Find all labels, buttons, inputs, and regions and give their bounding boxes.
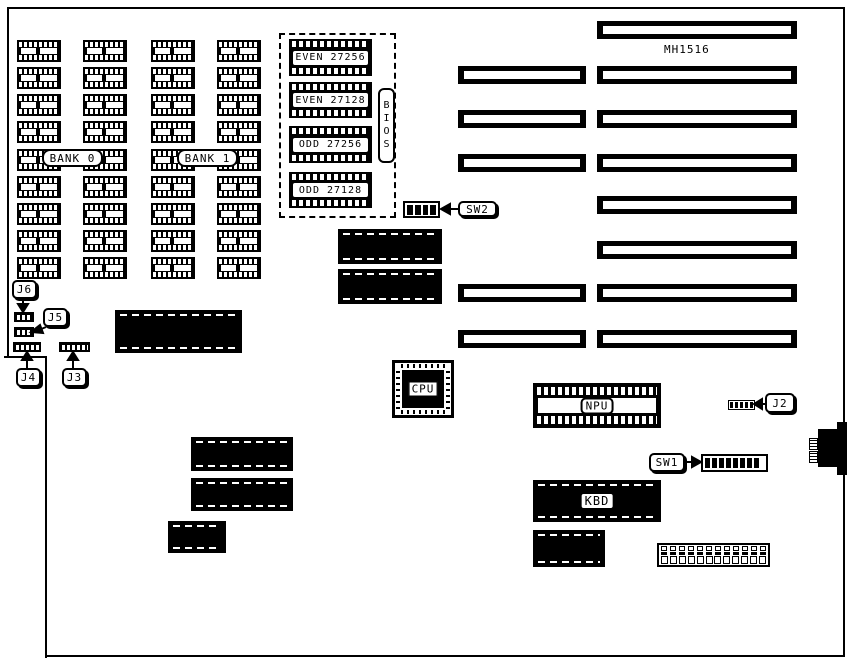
- ram-chip: [151, 176, 195, 198]
- ram-chip: [217, 257, 261, 279]
- ram-chip: [217, 203, 261, 225]
- ram-chip: [83, 94, 127, 116]
- ic-chip: [533, 530, 605, 567]
- expansion-slot: [597, 330, 797, 348]
- ram-chip: [17, 40, 61, 62]
- eprom-chip: ODD 27128: [289, 172, 372, 208]
- ram-chip: [83, 121, 127, 143]
- eprom-chip: ODD 27256: [289, 126, 372, 163]
- j3-label: J3: [62, 368, 87, 387]
- expansion-slot: [458, 154, 586, 172]
- expansion-slot: [597, 154, 797, 172]
- eprom-chip: EVEN 27128: [289, 82, 372, 118]
- expansion-slot: [597, 110, 797, 128]
- ic-chip: [191, 478, 293, 511]
- ram-chip: [83, 67, 127, 89]
- ram-chip: [17, 176, 61, 198]
- j6-label: J6: [12, 280, 37, 299]
- ram-chip: [17, 203, 61, 225]
- ram-chip: [217, 67, 261, 89]
- ram-chip: [151, 94, 195, 116]
- j5-connector: [14, 327, 34, 337]
- power-connector-tabs: [661, 546, 766, 551]
- eprom-chip: EVEN 27256: [289, 39, 372, 76]
- ram-chip: [217, 40, 261, 62]
- expansion-slot: [458, 284, 586, 302]
- keyboard-din-pin-block-2: [809, 451, 818, 463]
- ram-chip: [151, 203, 195, 225]
- ram-chip: [83, 176, 127, 198]
- npu-pins-top: [537, 387, 657, 395]
- ram-chip: [217, 94, 261, 116]
- keyboard-din-connector-flange: [837, 422, 847, 475]
- ram-chip: [17, 94, 61, 116]
- bank1-label: BANK 1: [177, 149, 238, 167]
- expansion-slot: [458, 330, 586, 348]
- ram-chip: [17, 67, 61, 89]
- eprom-chip-label: ODD 27128: [291, 181, 370, 199]
- cpu-pins-top: [401, 364, 445, 368]
- power-connector: [657, 543, 770, 567]
- ram-chip: [83, 230, 127, 252]
- ram-chip: [217, 176, 261, 198]
- ram-chip: [151, 67, 195, 89]
- j2-label: J2: [765, 393, 795, 413]
- npu-socket: NPU: [533, 383, 661, 428]
- bios-label: BIOS: [378, 88, 395, 163]
- expansion-slot: [458, 66, 586, 84]
- expansion-slot: [597, 21, 797, 39]
- expansion-slot: [458, 110, 586, 128]
- j3-connector: [59, 342, 90, 352]
- ram-chip: [17, 121, 61, 143]
- power-connector-divider: [661, 552, 766, 555]
- cpu-pins-bottom: [401, 410, 445, 414]
- cpu-chip: CPU: [392, 360, 454, 418]
- ram-chip: [151, 230, 195, 252]
- kbd-chip: KBD: [533, 480, 661, 522]
- sw2-label: SW2: [458, 201, 497, 217]
- model-label: MH1516: [664, 43, 710, 56]
- sw1-dip-switch: [701, 454, 768, 472]
- ram-chip: [217, 121, 261, 143]
- npu-pins-bottom: [537, 416, 657, 424]
- keyboard-din-pin-block-1: [809, 438, 818, 450]
- j5-label: J5: [43, 308, 68, 327]
- sw2-dip-switch: [403, 201, 440, 218]
- ram-chip: [83, 203, 127, 225]
- cpu-pins-right: [446, 369, 450, 409]
- ram-chip: [17, 257, 61, 279]
- eprom-chip-label: EVEN 27128: [291, 91, 370, 109]
- motherboard-diagram: BANK 0 BANK 1 EVEN 27256EVEN 27128ODD 27…: [0, 0, 852, 665]
- bank0-label: BANK 0: [42, 149, 103, 167]
- ram-chip: [217, 230, 261, 252]
- eprom-chip-label: ODD 27256: [291, 136, 370, 154]
- j4-connector: [13, 342, 41, 352]
- cpu-label: CPU: [409, 382, 438, 397]
- ram-chip: [83, 40, 127, 62]
- keyboard-din-connector-body: [818, 429, 838, 467]
- expansion-slot: [597, 241, 797, 259]
- j2-connector: [728, 400, 755, 410]
- board-outline-notch: [4, 356, 47, 658]
- kbd-chip-label: KBD: [581, 493, 614, 509]
- ic-chip: [338, 269, 442, 304]
- ic-chip: [338, 229, 442, 264]
- ic-chip: [168, 521, 226, 553]
- ram-chip: [17, 230, 61, 252]
- sw1-label: SW1: [649, 453, 685, 472]
- j6-connector: [14, 312, 34, 322]
- ram-chip: [151, 121, 195, 143]
- expansion-slot: [597, 66, 797, 84]
- npu-label: NPU: [581, 397, 614, 414]
- ic-chip: [191, 437, 293, 471]
- ram-chip: [83, 257, 127, 279]
- j4-label: J4: [16, 368, 41, 387]
- ic-chip: [115, 310, 242, 353]
- expansion-slot: [597, 284, 797, 302]
- expansion-slot: [597, 196, 797, 214]
- ram-chip: [151, 40, 195, 62]
- cpu-pins-left: [396, 369, 400, 409]
- eprom-chip-label: EVEN 27256: [291, 49, 370, 67]
- power-connector-sockets: [661, 556, 766, 564]
- ram-chip: [151, 257, 195, 279]
